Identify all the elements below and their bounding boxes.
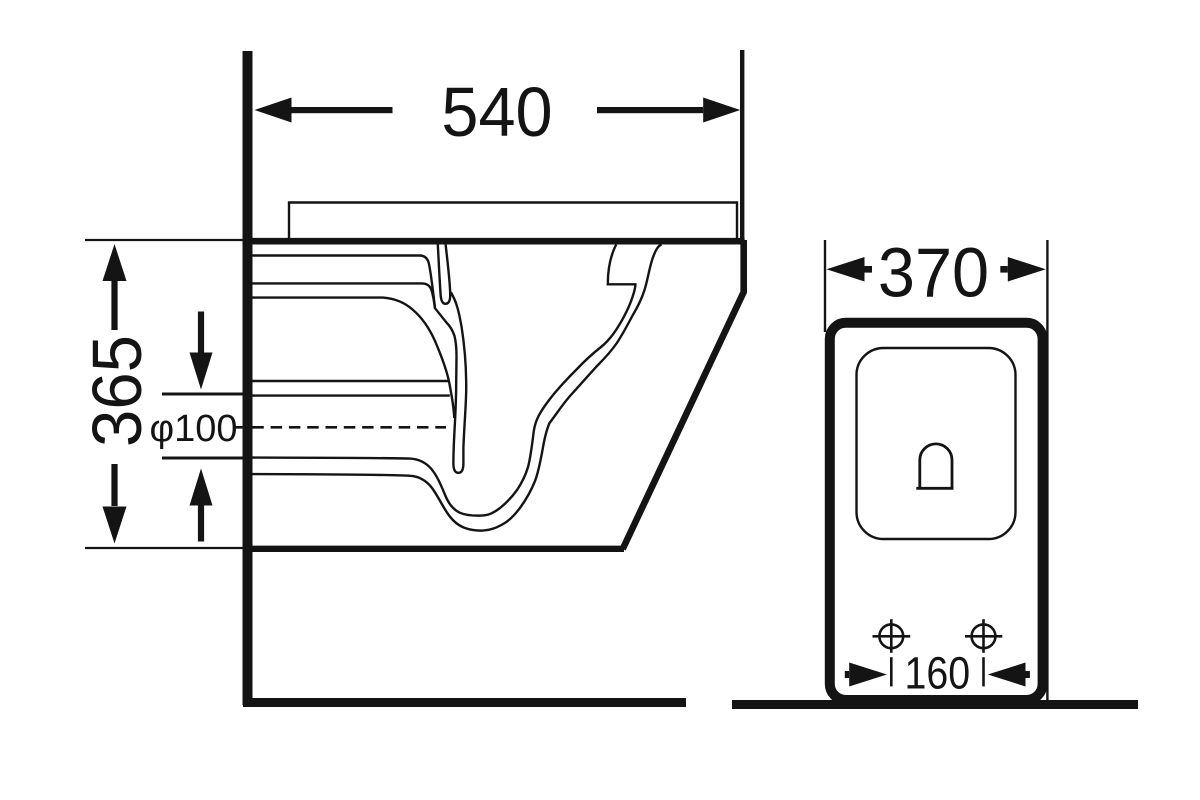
svg-text:φ100: φ100 [150,408,238,450]
svg-text:540: 540 [441,74,552,152]
svg-text:365: 365 [78,335,157,447]
svg-text:370: 370 [878,234,989,312]
svg-text:160: 160 [904,648,970,698]
